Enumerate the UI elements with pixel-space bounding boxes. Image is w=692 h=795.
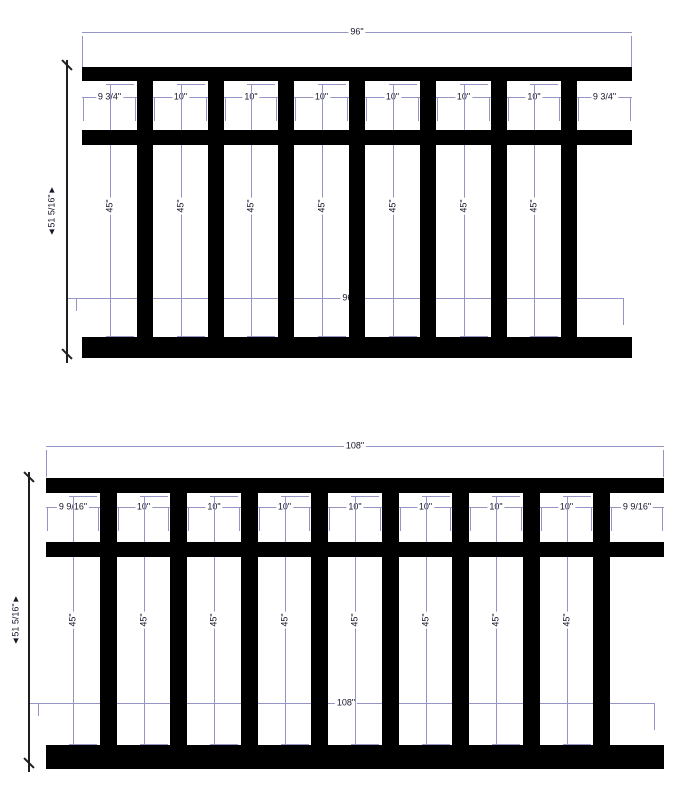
railing-elevation-108: 108"9 9/16"10"10"10"10"10"10"10"9 9/16"1… — [0, 0, 692, 795]
baluster — [170, 478, 187, 769]
top-rail — [46, 478, 664, 493]
baluster — [311, 478, 328, 769]
baluster — [452, 478, 469, 769]
baluster — [382, 478, 399, 769]
railing-shop-drawing: 96"9 3/4"10"10"10"10"10"10"9 3/4"96"45"4… — [0, 0, 692, 795]
geometry-layer — [0, 0, 692, 795]
baluster — [241, 478, 258, 769]
baluster — [523, 478, 540, 769]
bottom-rail — [46, 745, 664, 769]
baluster — [593, 478, 610, 769]
mid-rail — [46, 542, 664, 557]
baluster — [100, 478, 117, 769]
